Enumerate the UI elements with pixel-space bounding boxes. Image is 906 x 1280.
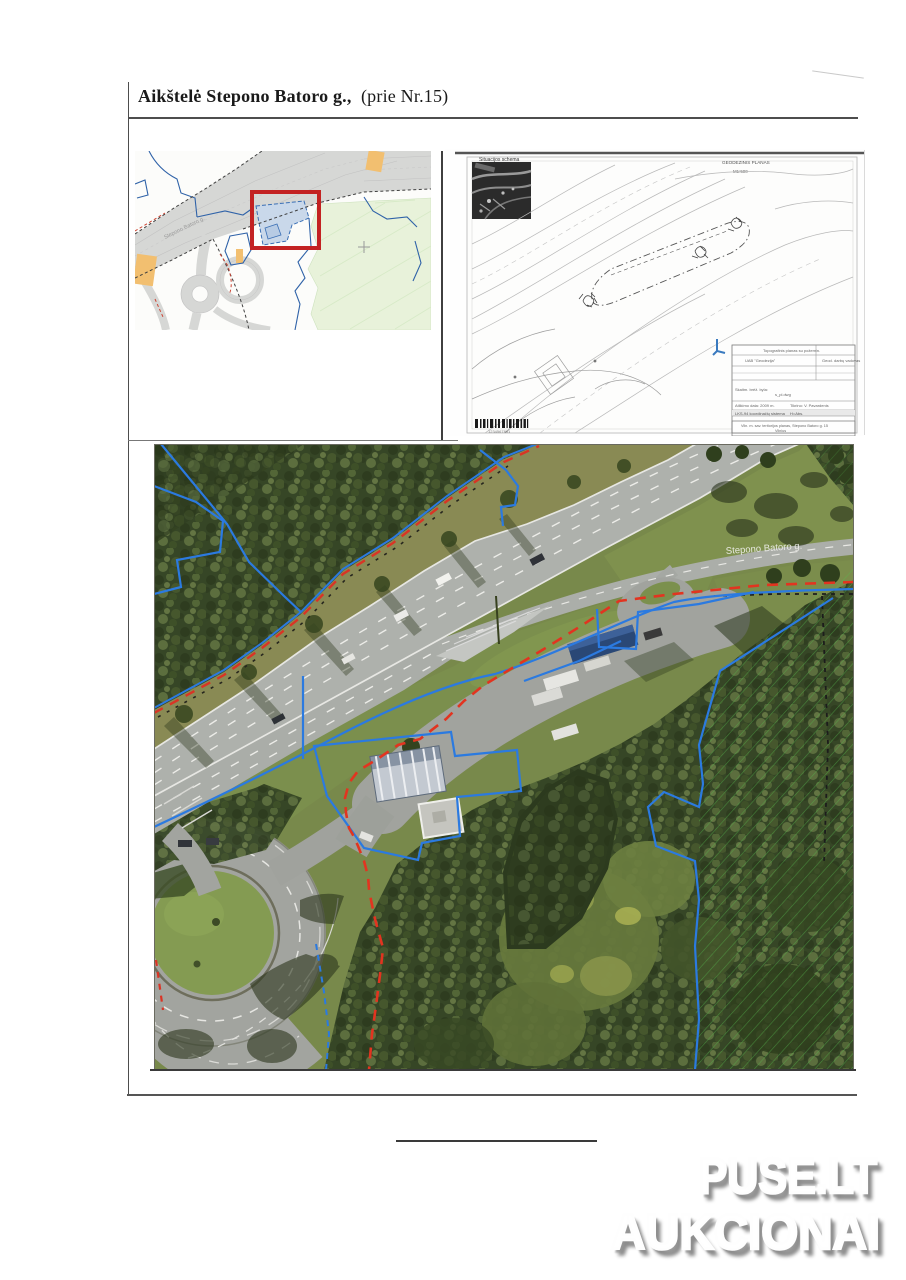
svg-text:Skaitm. brėž. byla:: Skaitm. brėž. byla: — [735, 387, 768, 392]
svg-text:UAB "Geodezija": UAB "Geodezija" — [745, 358, 776, 363]
svg-text:Atlikimo data: 2009 m.: Atlikimo data: 2009 m. — [735, 403, 775, 408]
svg-text:Topografinis planas su požemin: Topografinis planas su požemin. — [763, 348, 820, 353]
svg-text:1234567891: 1234567891 — [488, 429, 511, 434]
svg-text:GEODEZINIS PLANAS: GEODEZINIS PLANAS — [722, 160, 770, 165]
svg-text:Tikrino: V. Pavardenis: Tikrino: V. Pavardenis — [790, 403, 829, 408]
svg-text:H=Abs.: H=Abs. — [790, 411, 803, 416]
svg-text:Geod. darbų vadovas: Geod. darbų vadovas — [822, 358, 860, 363]
svg-text:Viln. m. sav. teritorijos plan: Viln. m. sav. teritorijos planas, Stepon… — [741, 424, 828, 428]
svg-text:s_pl.dwg: s_pl.dwg — [775, 392, 791, 397]
svg-text:LKS-94 koordinačių sistema: LKS-94 koordinačių sistema — [735, 411, 786, 416]
svg-text:Vilnius: Vilnius — [775, 429, 786, 433]
